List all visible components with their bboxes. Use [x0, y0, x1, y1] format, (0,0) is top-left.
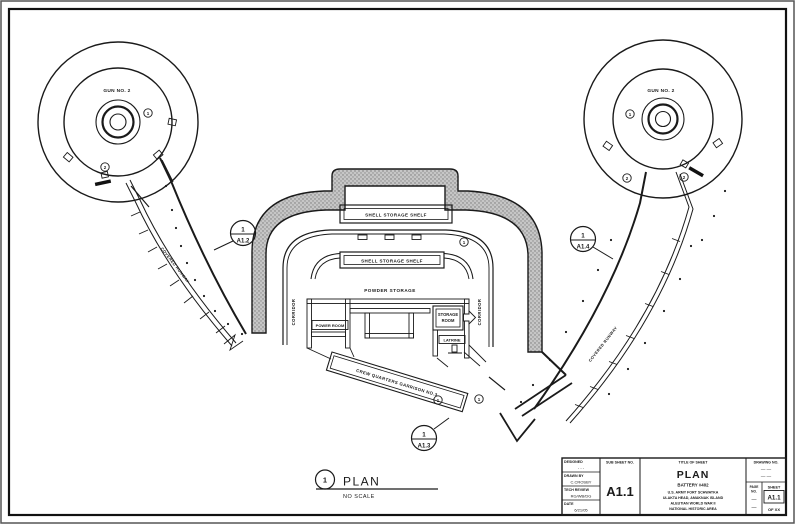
- marker-1: 1: [626, 110, 634, 118]
- drawing-sheet: GUN NO. 2 1 2 GUN NO. 2 1: [0, 0, 795, 524]
- svg-text:1: 1: [463, 240, 466, 245]
- gun-emplacement-left: GUN NO. 2 1 2: [38, 42, 198, 207]
- sub-sheet-number: A1.1: [606, 484, 633, 499]
- runway-right-label: COVERED RUNWAY: [587, 325, 618, 363]
- svg-text:BATTERY #402: BATTERY #402: [677, 483, 709, 488]
- view-title: 1 PLAN NO SCALE: [316, 470, 439, 500]
- detail-callout-a13: 1 A1.3: [412, 418, 450, 451]
- gun-left-label: GUN NO. 2: [103, 88, 130, 94]
- svg-text:LATRINE: LATRINE: [443, 338, 460, 343]
- title-block: DESIGNED - - - DRAWN BY C.CROSBY TECH RE…: [562, 458, 786, 515]
- svg-text:2: 2: [683, 175, 686, 180]
- magazine-structure: SHELL STORAGE SHELF 1 SHELL STORAGE SHEL…: [252, 169, 542, 367]
- svg-text:ULAKTA HEAD, AMAKNAK ISLAND: ULAKTA HEAD, AMAKNAK ISLAND: [663, 496, 724, 500]
- svg-text:A1.4: A1.4: [577, 245, 590, 251]
- svg-text:A1.3: A1.3: [418, 444, 431, 450]
- svg-text:RG/WB/DG: RG/WB/DG: [571, 494, 592, 499]
- stair-hatch: [688, 166, 704, 177]
- titleblock-title: TITLE OF SHEET PLAN BATTERY #402 U.S. AR…: [663, 461, 724, 512]
- detail-callout-a14: 1 A1.4: [571, 227, 614, 260]
- gun-mount-tab: [713, 139, 723, 148]
- svg-text:U.S. ARMY FORT SCHWATKA: U.S. ARMY FORT SCHWATKA: [668, 491, 719, 495]
- gun-mount-tab: [63, 152, 73, 161]
- svg-text:—: —: [752, 505, 757, 511]
- svg-text:1: 1: [478, 397, 481, 402]
- svg-text:SHELL STORAGE SHELF: SHELL STORAGE SHELF: [361, 259, 423, 264]
- fixture-icon: [452, 345, 457, 352]
- stair-hatch: [95, 179, 111, 186]
- interior-walls: [307, 299, 469, 358]
- marker-2: 2: [101, 163, 109, 171]
- svg-text:OF XX: OF XX: [768, 507, 780, 512]
- shell-shelf-lower: SHELL STORAGE SHELF: [311, 252, 473, 279]
- marker-1: 1: [460, 238, 468, 246]
- gun-right-label: GUN NO. 2: [647, 88, 674, 94]
- svg-text:NO.: NO.: [751, 490, 757, 494]
- plan-drawing: GUN NO. 2 1 2 GUN NO. 2 1: [0, 0, 795, 524]
- svg-text:- - -: - - -: [578, 466, 585, 471]
- shell-shelf-upper: SHELL STORAGE SHELF: [340, 205, 452, 223]
- stair-zigzag: [224, 335, 243, 350]
- svg-text:NATIONAL HISTORIC AREA: NATIONAL HISTORIC AREA: [669, 507, 717, 511]
- svg-text:1: 1: [437, 398, 440, 403]
- svg-text:— —: — —: [761, 467, 772, 472]
- view-number: 1: [323, 476, 327, 485]
- crew-quarters: CREW QUARTERS GARRISON NO.3 1 1: [326, 352, 483, 412]
- svg-text:STORAGE: STORAGE: [438, 312, 458, 317]
- svg-text:1: 1: [629, 112, 632, 117]
- svg-text:1: 1: [581, 233, 585, 240]
- gun-emplacement-right: GUN NO. 2 1 2 2: [584, 40, 742, 198]
- svg-text:SHELL STORAGE SHELF: SHELL STORAGE SHELF: [365, 213, 427, 218]
- svg-text:2: 2: [104, 165, 107, 170]
- svg-text:1: 1: [147, 111, 150, 116]
- corridor-right-label: CORRIDOR: [477, 299, 482, 326]
- powder-storage-label: POWDER STORAGE: [364, 288, 416, 293]
- svg-text:DRAWING NO.: DRAWING NO.: [754, 461, 779, 465]
- svg-text:DESIGNED: DESIGNED: [564, 460, 583, 464]
- sheet-number: A1.1: [767, 495, 781, 502]
- titleblock-subsheet: SUB SHEET NO. A1.1: [606, 461, 634, 500]
- titleblock-sheetno: DRAWING NO. — — — — PAGE NO. — — SHEET A…: [746, 461, 786, 516]
- svg-text:POWER ROOM: POWER ROOM: [316, 323, 345, 328]
- detail-callout-a12: 1 A1.2: [214, 221, 256, 251]
- covered-runway-left: COVERED RUNWAY: [126, 158, 246, 350]
- entry-walls: [489, 352, 572, 441]
- svg-text:—: —: [752, 497, 757, 503]
- power-room: POWER ROOM: [312, 321, 348, 330]
- svg-text:TECH REVIEW: TECH REVIEW: [564, 488, 590, 492]
- svg-text:2: 2: [626, 176, 629, 181]
- svg-text:ALEUTIAN WORLD WAR II: ALEUTIAN WORLD WAR II: [670, 502, 715, 506]
- door-arrow-icon: [464, 311, 476, 324]
- svg-text:1: 1: [241, 227, 245, 234]
- retaining-wall-ticks: [575, 239, 680, 408]
- svg-text:1: 1: [422, 432, 426, 439]
- latrine: LATRINE: [439, 336, 465, 354]
- post-dots: [520, 190, 726, 403]
- svg-text:6/21/05: 6/21/05: [574, 508, 588, 513]
- svg-text:— —: — —: [761, 474, 772, 479]
- svg-text:A1.2: A1.2: [237, 239, 250, 245]
- svg-text:PAGE: PAGE: [750, 485, 759, 489]
- vent-openings: [358, 235, 421, 240]
- svg-text:C.CROSBY: C.CROSBY: [571, 480, 592, 485]
- view-scale: NO SCALE: [343, 494, 375, 500]
- svg-text:ROOM: ROOM: [442, 318, 455, 323]
- svg-text:SHEET: SHEET: [768, 486, 781, 490]
- svg-text:DATE: DATE: [564, 502, 574, 506]
- marker-1: 1: [475, 395, 483, 403]
- corridor-left-label: CORRIDOR: [291, 299, 296, 326]
- svg-text:TITLE OF SHEET: TITLE OF SHEET: [679, 461, 709, 465]
- svg-text:DRAWN BY: DRAWN BY: [564, 474, 584, 478]
- marker-1: 1: [144, 109, 152, 117]
- view-title-text: PLAN: [343, 475, 380, 489]
- marker-2: 2: [623, 174, 631, 182]
- gun-mount-tab: [603, 141, 613, 150]
- svg-text:SUB SHEET NO.: SUB SHEET NO.: [606, 461, 634, 465]
- sheet-title: PLAN: [677, 469, 710, 481]
